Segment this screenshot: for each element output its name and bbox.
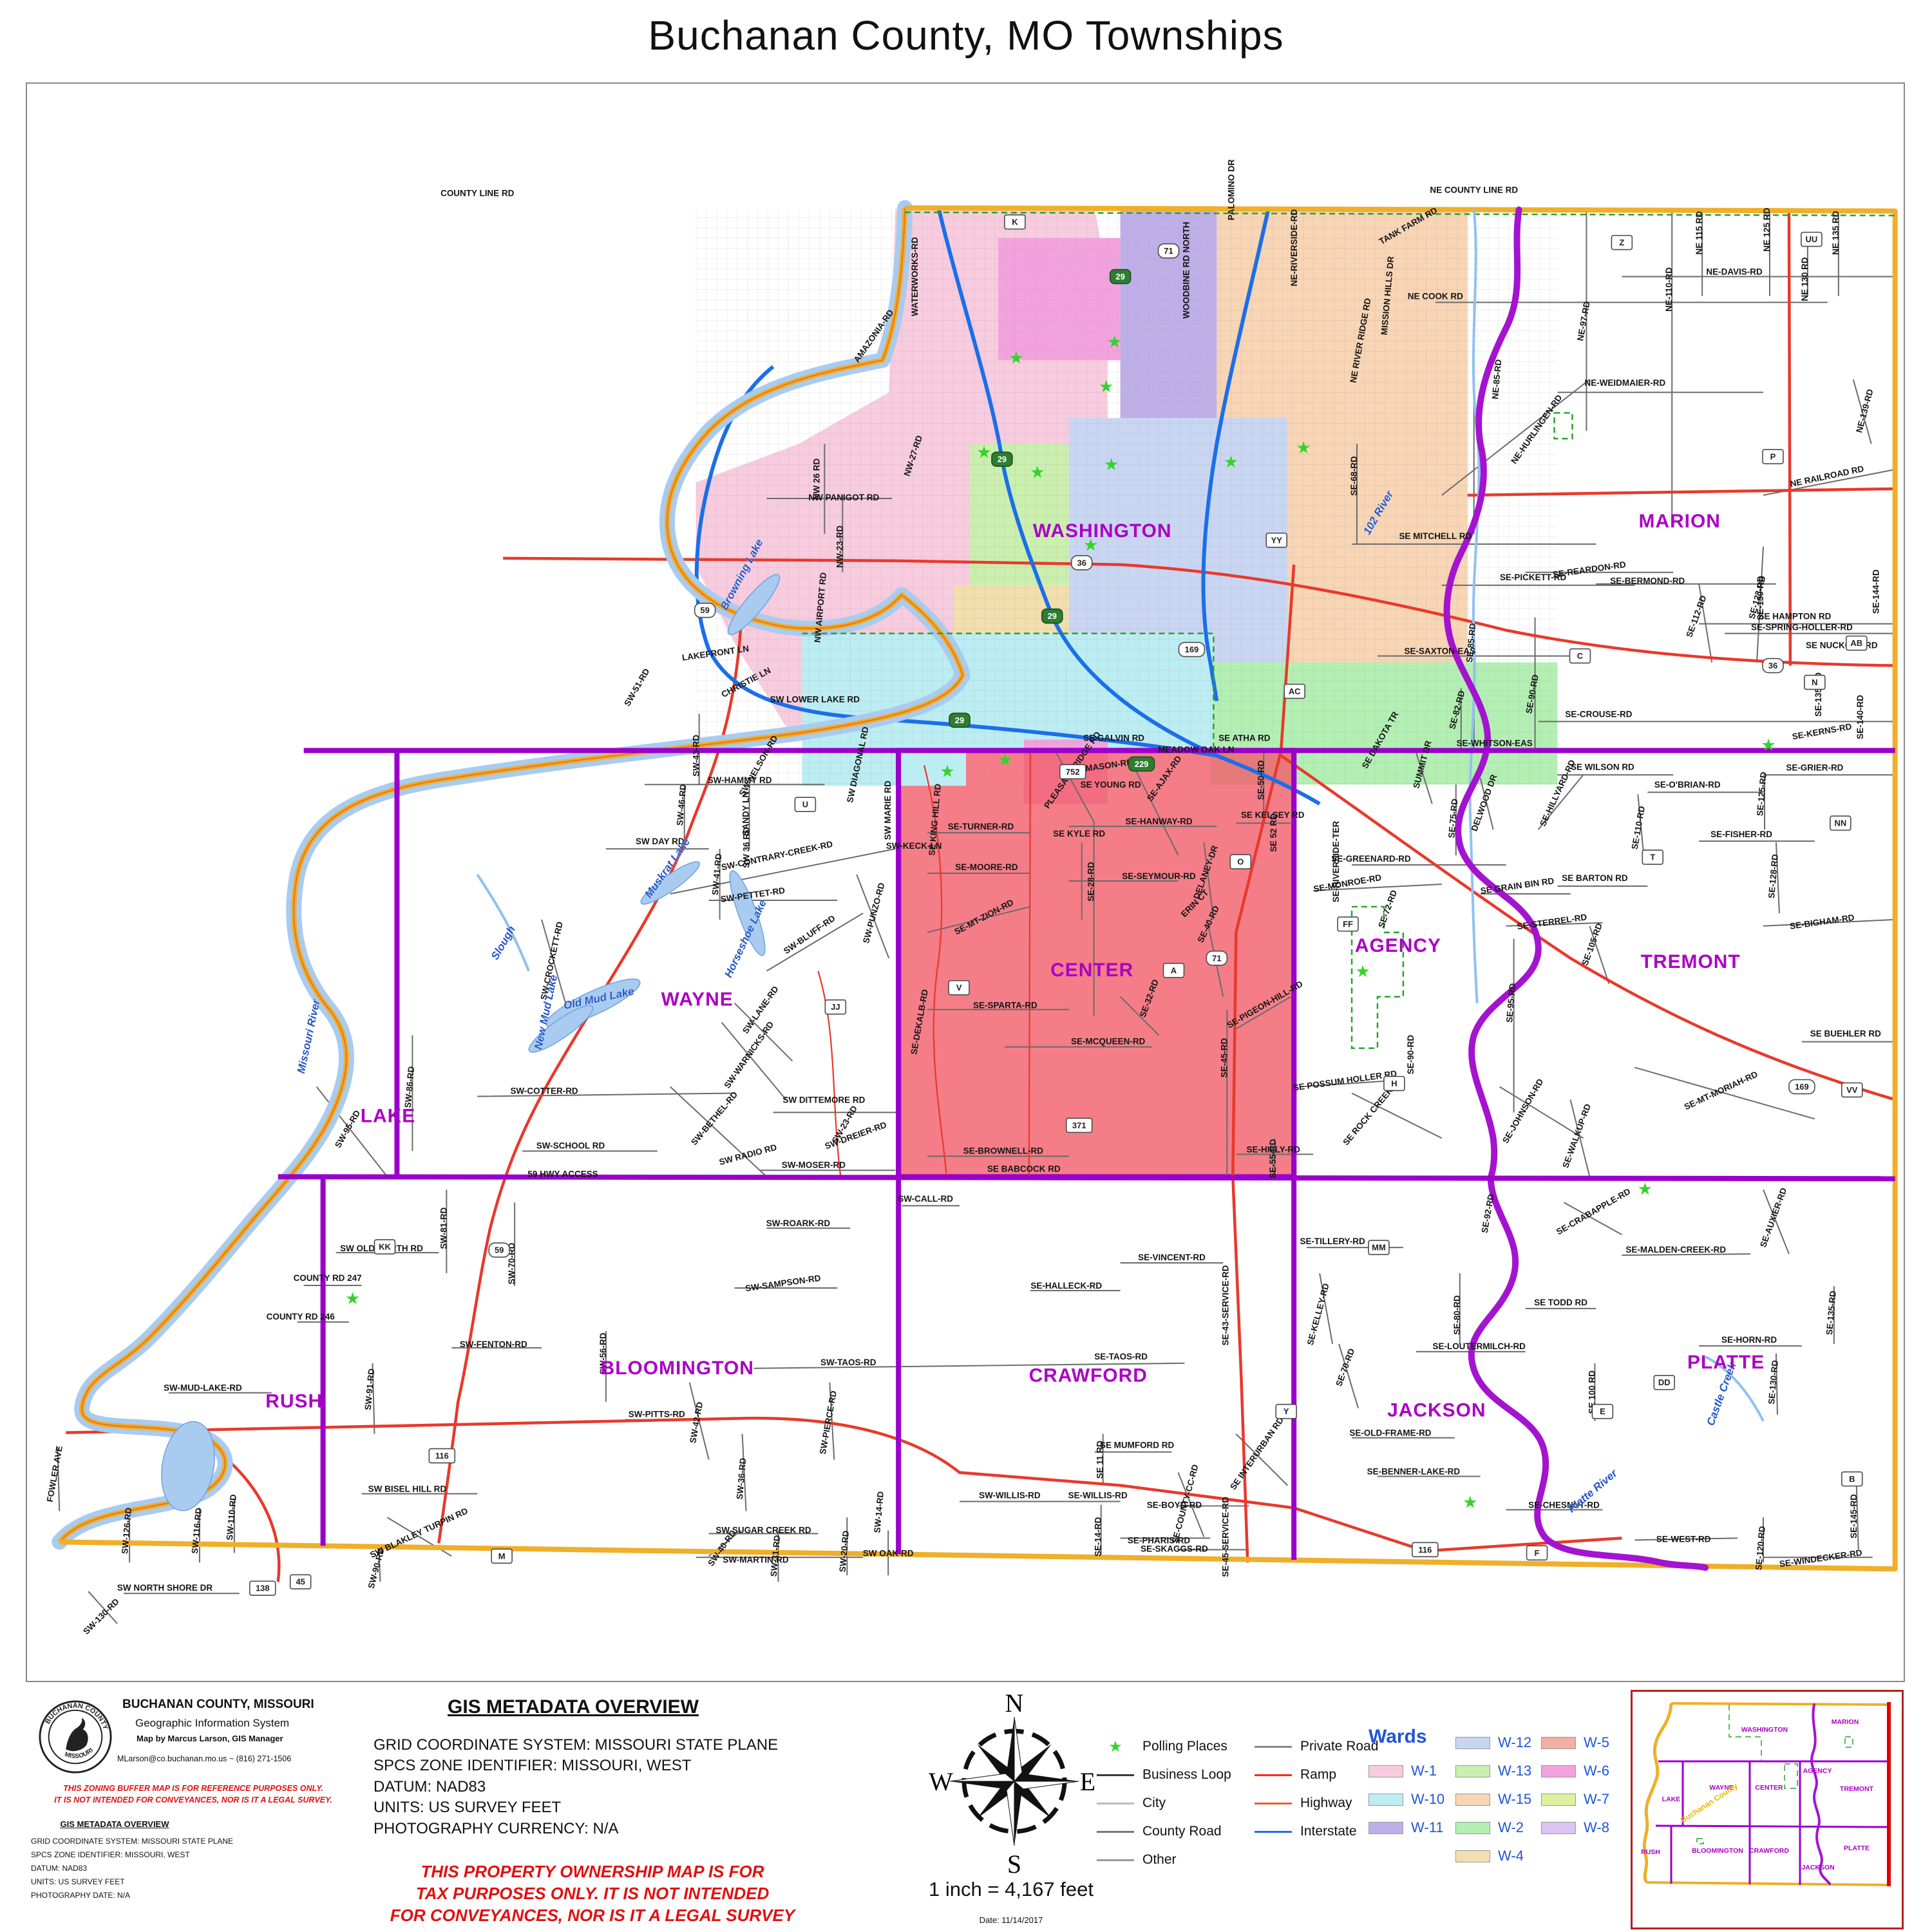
- water-label: Missouri River: [295, 998, 323, 1075]
- route-shield-N: N: [1804, 676, 1825, 690]
- legend-line-sample: [1255, 1746, 1292, 1748]
- road-label: NE COOK RD: [1408, 291, 1463, 301]
- legend-item-county-road: County Road: [1095, 1817, 1231, 1846]
- legend-line-sample: [1255, 1831, 1292, 1833]
- road-label: SE-HALLECK-RD: [1030, 1281, 1102, 1291]
- legend-label: City: [1142, 1795, 1166, 1811]
- ward-legend-w-12: W-12: [1455, 1728, 1531, 1757]
- route-shield-DD: DD: [1654, 1376, 1674, 1390]
- road-label: SE-HORN-RD: [1721, 1335, 1777, 1345]
- legend-label: Polling Places: [1142, 1739, 1227, 1754]
- road-label: SE-BIGHAM-RD: [1789, 913, 1855, 931]
- road-label: SE-MT-MORIAH-RD: [1683, 1069, 1759, 1112]
- metadata-line: GRID COORDINATE SYSTEM: MISSOURI STATE P…: [31, 1835, 233, 1848]
- polling-place-star: ★: [1761, 736, 1776, 754]
- polling-place-star: ★: [1030, 464, 1045, 482]
- ward-label: W-4: [1498, 1848, 1524, 1864]
- route-shield-36: 36: [1072, 556, 1092, 570]
- road-label: SE-SAXTON-EAS: [1405, 647, 1476, 656]
- legend-item-ramp: Ramp: [1253, 1761, 1378, 1789]
- township-label-wayne: WAYNE: [661, 989, 734, 1010]
- page-title: Buchanan County, MO Townships: [0, 12, 1932, 59]
- legend-line-sample: [1255, 1803, 1292, 1804]
- legend-item-business-loop: Business Loop: [1095, 1761, 1231, 1789]
- metadata-line: GRID COORDINATE SYSTEM: MISSOURI STATE P…: [374, 1735, 863, 1756]
- polling-place-star: ★: [1463, 1493, 1477, 1511]
- road-label: SW-COTTER-RD: [510, 1086, 578, 1095]
- ward-swatch: [1368, 1765, 1403, 1777]
- svg-text:E: E: [1600, 1406, 1605, 1416]
- legend-line-sample: [1255, 1774, 1292, 1776]
- road-label: SE-WALKUP-RD: [1560, 1103, 1593, 1170]
- svg-text:Z: Z: [1619, 238, 1624, 247]
- svg-text:P: P: [1770, 452, 1776, 462]
- road-label: SW-ROARK-RD: [766, 1218, 831, 1228]
- svg-text:F: F: [1535, 1548, 1540, 1558]
- road-label: NE 130 RD: [1800, 257, 1810, 301]
- svg-text:DD: DD: [1658, 1378, 1671, 1387]
- inset-overview-map[interactable]: WASHINGTONMARIONAGENCYWAYNECENTERTREMONT…: [1631, 1690, 1904, 1929]
- road-label: SE-GREENARD-RD: [1331, 854, 1411, 864]
- ward-legend-w-11: W-11: [1368, 1814, 1444, 1842]
- ward-label: W-11: [1411, 1819, 1444, 1836]
- road-label: SE-125-RD: [1755, 772, 1768, 817]
- road-label: SE KYLE RD: [1053, 829, 1105, 838]
- route-shield-U: U: [795, 797, 815, 811]
- metadata-line: SPCS ZONE IDENTIFIER: MISSOURI, WEST: [374, 1756, 863, 1776]
- road-label: SW-41-RD: [710, 853, 724, 895]
- road-label: SE-BOYD-RD: [1147, 1500, 1202, 1510]
- road-label: SE-135-RD: [1824, 1290, 1838, 1335]
- road-label: SW-130-RD: [81, 1596, 121, 1636]
- ward-label: W-2: [1498, 1819, 1524, 1836]
- legend-item-other: Other: [1095, 1846, 1231, 1874]
- interstate-shield-29: 29: [1042, 609, 1063, 623]
- svg-text:KK: KK: [379, 1242, 391, 1252]
- township-label-washington: WASHINGTON: [1033, 520, 1172, 542]
- road-label: NE RAILROAD RD: [1789, 464, 1865, 489]
- inset-township-lake: LAKE: [1662, 1795, 1681, 1803]
- legend-item-city: City: [1095, 1789, 1231, 1817]
- polling-place-star: ★: [1355, 963, 1370, 981]
- svg-text:T: T: [1650, 853, 1655, 862]
- inset-township-bloomington: BLOOMINGTON: [1692, 1847, 1743, 1855]
- legend-column-1: ★Polling PlacesBusiness LoopCityCounty R…: [1095, 1732, 1231, 1874]
- road-label: SE-PICKETT-RD: [1500, 573, 1567, 582]
- road-label: NE 135 RD: [1831, 211, 1841, 254]
- svg-text:YY: YY: [1271, 535, 1283, 545]
- svg-text:K: K: [1012, 217, 1018, 227]
- svg-text:29: 29: [1115, 272, 1124, 281]
- road-label: SW-LANE-RD: [741, 984, 781, 1036]
- svg-text:59: 59: [700, 605, 709, 615]
- road-label: SE-TAOS-RD: [1094, 1352, 1148, 1361]
- svg-text:U: U: [802, 800, 808, 810]
- road-label: SE-SPARTA-RD: [973, 1001, 1037, 1010]
- road-label: SE-MCQUEEN-RD: [1071, 1037, 1146, 1046]
- metadata-center: GIS METADATA OVERVIEW GRID COORDINATE SY…: [374, 1696, 863, 1926]
- road-label: NE-110-RD: [1664, 267, 1674, 312]
- ward-legend-w-7: W-7: [1541, 1785, 1609, 1814]
- route-shield-P: P: [1763, 450, 1783, 464]
- road-label: NE-WEIDMAIER-RD: [1584, 378, 1665, 388]
- map-date: Date: 11/14/2017: [914, 1915, 1108, 1925]
- route-shield-71: 71: [1206, 951, 1227, 965]
- metadata-line: PHOTOGRAPHY DATE: N/A: [31, 1889, 233, 1902]
- road-label: SE-120-RD: [1754, 1526, 1767, 1571]
- svg-text:NN: NN: [1834, 819, 1846, 828]
- road-label: SW-MARTIN-RD: [723, 1555, 788, 1564]
- interstate-shield-29: 29: [1110, 270, 1131, 284]
- road-label: SE-92-RD: [1480, 1193, 1496, 1234]
- township-label-platte: PLATTE: [1687, 1352, 1765, 1373]
- road-label: SW-36-RD: [735, 1457, 748, 1500]
- road-label: NE-97-RD: [1575, 300, 1592, 341]
- route-shield-K: K: [1005, 215, 1025, 229]
- ward-legend-w-5: W-5: [1541, 1728, 1609, 1757]
- metadata-small: GIS METADATA OVERVIEW GRID COORDINATE SY…: [31, 1817, 233, 1902]
- road-label: MEADOW OAK LN: [1158, 744, 1234, 754]
- township-label-agency: AGENCY: [1355, 935, 1441, 956]
- legend-label: Private Road: [1300, 1739, 1378, 1754]
- route-shield-Y: Y: [1276, 1405, 1296, 1419]
- ward-swatch: [1541, 1794, 1576, 1806]
- legend-label: Other: [1142, 1852, 1177, 1868]
- polling-place-star: ★: [1224, 453, 1238, 471]
- legend-column-2: Private RoadRampHighwayInterstate: [1253, 1732, 1378, 1846]
- road-label: SE-80-RD: [1452, 1295, 1462, 1335]
- ward-swatch: [1541, 1765, 1576, 1777]
- ward-label: W-15: [1498, 1791, 1531, 1808]
- road-label: SW-42-RD: [688, 1401, 705, 1444]
- svg-text:B: B: [1849, 1474, 1855, 1484]
- road-label: SE 52 RD: [1269, 813, 1278, 852]
- interstate-shield-29: 29: [992, 452, 1012, 466]
- route-shield-752: 752: [1060, 764, 1086, 779]
- route-shield-B: B: [1842, 1472, 1862, 1486]
- svg-text:116: 116: [1418, 1545, 1432, 1555]
- road-label: SE-WEST-RD: [1656, 1534, 1711, 1544]
- road-label: SW-CONTRARY-CREEK-RD: [721, 839, 834, 872]
- road-label: SE-72-RD: [1376, 889, 1399, 929]
- polling-place-star: ★: [998, 751, 1012, 769]
- road-label: SE-CRABAPPLE-RD: [1555, 1186, 1632, 1236]
- legend-label: Highway: [1300, 1795, 1352, 1811]
- ward-legend-w-15: W-15: [1455, 1785, 1531, 1814]
- township-label-bloomington: BLOOMINGTON: [601, 1358, 754, 1379]
- road-label: SE BABCOCK RD: [987, 1164, 1061, 1173]
- route-shield-KK: KK: [374, 1240, 395, 1254]
- road-label: SE-45-SERVICE-RD: [1220, 1497, 1230, 1577]
- road-label: SE INTERURBAN RD: [1228, 1416, 1285, 1492]
- svg-text:59: 59: [495, 1245, 504, 1255]
- legend-label: Ramp: [1300, 1767, 1336, 1783]
- route-shield-FF: FF: [1338, 917, 1358, 931]
- road-label: SE-SPRING-HOLLER-RD: [1751, 623, 1853, 632]
- road-label: SE-95-RD: [1504, 983, 1517, 1023]
- road-label: SW-91-RD: [363, 1368, 377, 1410]
- road-label: PALOMINO DR: [1226, 159, 1236, 220]
- road-label: SE-MONROE-RD: [1312, 873, 1382, 894]
- road-label: SE-140-RD: [1855, 695, 1865, 739]
- ward-legend-w-10: W-10: [1368, 1785, 1444, 1814]
- road-label: SE-43-SERVICE-RD: [1220, 1265, 1230, 1345]
- route-shield-NN: NN: [1830, 816, 1851, 830]
- svg-text:Y: Y: [1283, 1406, 1289, 1416]
- polling-place-star: ★: [976, 444, 991, 462]
- road-label: NE-DAVIS-RD: [1706, 267, 1763, 277]
- route-shield-36: 36: [1763, 659, 1783, 673]
- legend-label: County Road: [1142, 1824, 1222, 1839]
- ward-swatch: [1541, 1737, 1576, 1749]
- route-shield-138: 138: [250, 1581, 276, 1595]
- road-label: SE-WHITSON-EAS: [1457, 738, 1533, 748]
- ward-label: W-13: [1498, 1763, 1531, 1779]
- svg-text:MM: MM: [1372, 1243, 1386, 1253]
- road-label: SE-50-RD: [1256, 760, 1265, 800]
- route-shield-59: 59: [489, 1243, 509, 1257]
- road-label: SE-110-RD: [1630, 805, 1647, 850]
- inset-township-marion: MARION: [1832, 1718, 1859, 1726]
- metadata-line: UNITS: US SURVEY FEET: [31, 1875, 233, 1889]
- org-mapby: Map by Marcus Larson, GIS Manager: [137, 1734, 283, 1743]
- road-label: SE-130-RD: [1756, 576, 1765, 620]
- road-label: SE-45-RD: [1219, 1038, 1229, 1078]
- route-shield-UU: UU: [1801, 232, 1822, 247]
- polling-place-star: ★: [940, 762, 954, 781]
- legend-line-sample: [1097, 1774, 1134, 1776]
- road-label: SW-116-RD: [190, 1507, 204, 1554]
- road-label: SW-KECK-LN: [886, 841, 942, 851]
- ward-label: W-7: [1584, 1791, 1609, 1808]
- road-label: SE-WILLIS-RD: [1068, 1490, 1128, 1500]
- svg-text:29: 29: [955, 715, 964, 725]
- inset-township-crawford: CRAWFORD: [1749, 1847, 1789, 1855]
- road-label: SW-BLUFF-RD: [782, 913, 837, 956]
- svg-text:138: 138: [256, 1584, 270, 1593]
- road-label: SE-68-RD: [1349, 456, 1359, 496]
- route-shield-45: 45: [290, 1575, 311, 1589]
- road-label: WATERWORKS-RD: [910, 237, 920, 316]
- road-label: SW BISEL HILL RD: [368, 1484, 447, 1493]
- road-label: SW-WILLIS-RD: [979, 1490, 1041, 1500]
- polling-places-icon: ★: [1108, 1738, 1122, 1756]
- road-label: SW-FENTON-RD: [460, 1340, 527, 1349]
- polling-place-star: ★: [1104, 456, 1119, 474]
- road-label: SE BUEHLER RD: [1810, 1029, 1881, 1039]
- road-label: SE-OLD-FRAME-RD: [1349, 1428, 1431, 1438]
- route-shield-VV: VV: [1842, 1083, 1862, 1097]
- svg-text:JJ: JJ: [831, 1002, 840, 1012]
- metadata-line: DATUM: NAD83: [374, 1777, 863, 1797]
- route-shield-AB: AB: [1846, 636, 1867, 650]
- svg-text:A: A: [1171, 965, 1177, 975]
- inset-township-agency: AGENCY: [1803, 1767, 1832, 1775]
- route-shield-371: 371: [1066, 1118, 1092, 1132]
- route-shield-71: 71: [1159, 244, 1179, 258]
- svg-text:N: N: [1005, 1691, 1024, 1718]
- org-name: BUCHANAN COUNTY, MISSOURI: [122, 1698, 314, 1712]
- road-label: SE-LOUTERMILCH-RD: [1433, 1341, 1526, 1351]
- metadata-line: UNITS: US SURVEY FEET: [374, 1797, 863, 1818]
- road-label: SE-55-RD: [1268, 1139, 1278, 1179]
- township-label-lake: LAKE: [361, 1105, 416, 1126]
- svg-text:45: 45: [296, 1577, 305, 1587]
- legend-line-sample: [1097, 1803, 1134, 1804]
- route-shield-116: 116: [1412, 1542, 1438, 1557]
- org-gis: Geographic Information System: [135, 1717, 289, 1730]
- township-label-center: CENTER: [1050, 960, 1133, 981]
- svg-text:O: O: [1237, 857, 1244, 867]
- route-shield-116: 116: [429, 1449, 455, 1463]
- road-label: SE-BERMOND-RD: [1610, 576, 1685, 586]
- svg-text:H: H: [1391, 1079, 1397, 1088]
- road-label: NE COUNTY LINE RD: [1430, 185, 1518, 195]
- ward-legend-w-6: W-6: [1541, 1757, 1609, 1785]
- metadata-line: DATUM: NAD83: [31, 1862, 233, 1875]
- road-label: SE TODD RD: [1534, 1298, 1587, 1307]
- route-shield-A: A: [1164, 963, 1184, 978]
- road-label: SE-O'BRIAN-RD: [1654, 780, 1721, 790]
- road-label: SE-GRIER-RD: [1786, 762, 1843, 772]
- water-label: Slough: [489, 923, 518, 961]
- road-label: SW-51-RD: [622, 667, 652, 708]
- polling-place-star: ★: [1099, 378, 1113, 396]
- road-label: COUNTY RD 246: [267, 1312, 335, 1321]
- road-label: SE-144-RD: [1871, 569, 1881, 614]
- road-label: SE-MOORE-RD: [955, 862, 1018, 872]
- tax-disclaimer-line: FOR CONVEYANCES, NOR IS IT A LEGAL SURVE…: [374, 1905, 811, 1927]
- ward-label: W-8: [1584, 1819, 1609, 1836]
- route-shield-169: 169: [1789, 1080, 1815, 1094]
- inset-township-center: CENTER: [1755, 1784, 1783, 1792]
- route-shield-H: H: [1384, 1077, 1405, 1091]
- ward-swatch: [1455, 1850, 1490, 1862]
- township-label-crawford: CRAWFORD: [1029, 1365, 1148, 1387]
- road-label: SE-MALDEN-CREEK-RD: [1625, 1245, 1726, 1255]
- legend-label: Business Loop: [1142, 1767, 1231, 1783]
- wards-title: Wards: [1368, 1726, 1427, 1748]
- tax-disclaimer-line: TAX PURPOSES ONLY. IT IS NOT INTENDED: [374, 1883, 811, 1905]
- svg-text:169: 169: [1185, 645, 1199, 654]
- road-label: SE MUMFORD RD: [1100, 1441, 1175, 1450]
- legend-line-sample: [1097, 1859, 1134, 1861]
- ward-label: W-10: [1411, 1791, 1444, 1808]
- road-label: SE-AUXIER-RD: [1758, 1186, 1788, 1249]
- polling-place-star: ★: [1107, 333, 1122, 351]
- inset-township-rush: RUSH: [1641, 1848, 1660, 1856]
- route-shield-V: V: [949, 981, 969, 995]
- road-label: SW-TAOS-RD: [820, 1358, 876, 1367]
- road-label: SE-SEYMOUR-RD: [1122, 871, 1196, 881]
- county-seal: BUCHANAN COUNTY MISSOURI: [37, 1699, 113, 1775]
- route-shield-YY: YY: [1266, 533, 1287, 547]
- svg-text:71: 71: [1164, 246, 1173, 256]
- org-email[interactable]: MLarson@co.buchanan.mo.us ~ (816) 271-15…: [117, 1754, 291, 1763]
- road-label: SE-BROWNELL-RD: [963, 1146, 1043, 1155]
- road-label: SW DITTEMORE RD: [782, 1095, 865, 1104]
- road-label: SW MARIE RD: [883, 781, 893, 840]
- interstate-shield-229: 229: [1129, 757, 1155, 771]
- metadata-line: PHOTOGRAPHY CURRENCY: N/A: [374, 1819, 863, 1839]
- compass-rose: N S W E: [924, 1691, 1104, 1878]
- road-label: SE-90-RD: [1406, 1035, 1416, 1075]
- legend-item-private-road: Private Road: [1253, 1732, 1378, 1761]
- road-label: SW-MOSER-RD: [782, 1160, 846, 1170]
- ward-swatch: [1455, 1765, 1490, 1777]
- metadata-line: SPCS ZONE IDENTIFIER: MISSOURI, WEST: [31, 1848, 233, 1862]
- county-map[interactable]: COUNTY LINE RDNE COUNTY LINE RDWATERWORK…: [26, 82, 1905, 1682]
- ward-label: W-5: [1584, 1734, 1609, 1751]
- road-label: SW-PUNZO-RD: [861, 882, 887, 945]
- road-label: SW-46-RD: [675, 784, 688, 826]
- tax-disclaimer-line: THIS PROPERTY OWNERSHIP MAP IS FOR: [374, 1861, 811, 1883]
- road-label: SE POSSUM HOLLER RD: [1293, 1068, 1397, 1092]
- route-shield-C: C: [1569, 649, 1590, 663]
- legend-label: Interstate: [1300, 1824, 1357, 1839]
- route-shield-Z: Z: [1611, 236, 1632, 250]
- interstate-shield-29: 29: [949, 713, 970, 727]
- road-label: SE GRAIN BIN RD: [1480, 876, 1555, 896]
- road-label: SE-CROUSE-RD: [1565, 709, 1632, 719]
- legend-item-polling-places: ★Polling Places: [1095, 1732, 1231, 1761]
- ward-legend-w-4: W-4: [1455, 1842, 1531, 1870]
- route-shield-E: E: [1592, 1405, 1613, 1419]
- road-label: SE-FISHER-RD: [1710, 829, 1772, 839]
- road-label: SE 11 RD: [1095, 1441, 1105, 1479]
- road-label: SW-14-RD: [872, 1491, 885, 1533]
- polling-place-star: ★: [1296, 439, 1311, 457]
- svg-text:29: 29: [998, 455, 1007, 464]
- road-label: SE-VINCENT-RD: [1138, 1253, 1206, 1262]
- road-label: COUNTY RD 247: [294, 1273, 362, 1283]
- inset-township-jackson: JACKSON: [1801, 1864, 1834, 1871]
- road-label: SW-110-RD: [225, 1493, 238, 1540]
- township-label-marion: MARION: [1639, 511, 1721, 532]
- ward10-notch: [898, 750, 966, 786]
- ward-swatch: [1455, 1822, 1490, 1834]
- route-shield-JJ: JJ: [825, 1000, 846, 1014]
- svg-text:169: 169: [1795, 1082, 1809, 1092]
- road-label: SW-43-RD: [692, 735, 701, 777]
- road-label: SW-86-RD: [403, 1066, 417, 1108]
- road-label: NE-RIVERSIDE-RD: [1289, 209, 1299, 286]
- metadata-title: GIS METADATA OVERVIEW: [374, 1696, 773, 1718]
- svg-text:AB: AB: [1850, 638, 1862, 648]
- road-label: SE-14-RD: [1094, 1517, 1103, 1557]
- svg-text:V: V: [956, 983, 962, 992]
- road-label: WOODBINE RD NORTH: [1181, 222, 1191, 318]
- road-label: SE YOUNG RD: [1081, 780, 1141, 790]
- road-label: SE-TILLERY-RD: [1300, 1236, 1365, 1246]
- zoning-disclaimer: THIS ZONING BUFFER MAP IS FOR REFERENCE …: [26, 1783, 361, 1806]
- svg-text:W: W: [929, 1767, 953, 1796]
- road-label: SE BARTON RD: [1562, 873, 1628, 883]
- svg-text:S: S: [1007, 1850, 1021, 1878]
- township-label-jackson: JACKSON: [1387, 1400, 1486, 1421]
- ward-swatch: [1368, 1822, 1403, 1834]
- road-label: SW NORTH SHORE DR: [117, 1583, 213, 1593]
- road-label: SE-SKAGGS-RD: [1141, 1544, 1208, 1553]
- road-label: SW-SCHOOL RD: [536, 1141, 605, 1150]
- township-label-rush: RUSH: [265, 1391, 323, 1412]
- road-label: NW-23-RD: [835, 526, 844, 568]
- road-label: SW-HAMMY RD: [708, 775, 772, 785]
- legend-line-sample: [1097, 1831, 1134, 1833]
- road-label: SW-20-RD: [838, 1530, 851, 1573]
- road-label: 59 HWY ACCESS: [527, 1169, 598, 1179]
- inset-township-tremont: TREMONT: [1840, 1785, 1873, 1793]
